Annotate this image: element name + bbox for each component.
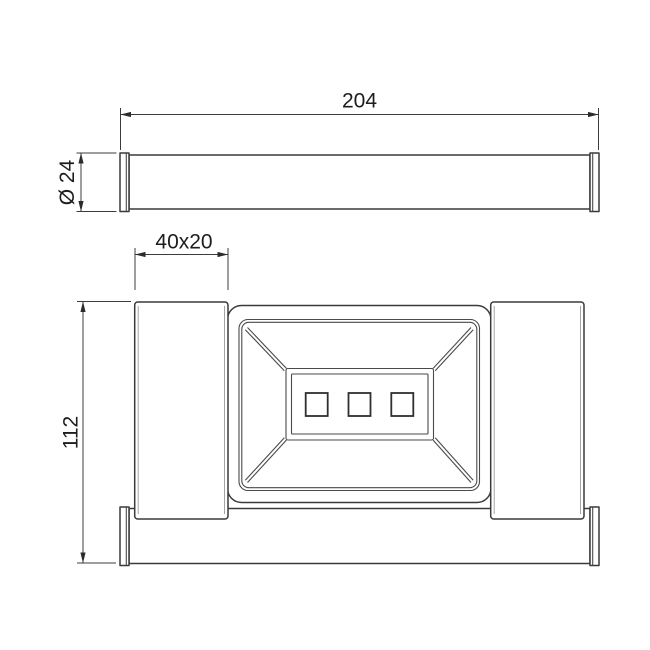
dimension-label-bar-length: 204: [342, 90, 377, 113]
technical-drawing: 204 Ø 24: [0, 0, 650, 650]
soap-basket: [228, 306, 492, 503]
post-section-dimension: 40x20: [135, 231, 228, 291]
dimension-label-overall-height: 112: [60, 416, 83, 449]
bar-end-cap-right: [590, 153, 599, 212]
diameter-dimension: Ø 24: [56, 153, 117, 212]
bar-end-cap-right: [590, 507, 599, 566]
arrowhead-down: [78, 201, 83, 212]
post-right: [491, 302, 584, 519]
arrowhead-right: [588, 112, 599, 117]
arrowhead-up: [78, 153, 83, 164]
arrowhead-right: [218, 252, 229, 257]
bar-end-cap-left: [120, 507, 129, 566]
length-dimension: 204: [121, 90, 599, 151]
arrowhead-up: [80, 302, 85, 313]
bar-top-view: [120, 153, 599, 212]
basket-bottom-outer: [286, 369, 434, 441]
bar-end-cap-left: [120, 153, 129, 212]
front-view: 40x20 112: [60, 231, 600, 566]
top-view: 204 Ø 24: [56, 90, 599, 212]
dimension-label-post-section: 40x20: [155, 231, 212, 254]
arrowhead-left: [121, 112, 132, 117]
post-left: [135, 302, 228, 519]
drawing-canvas: 204 Ø 24: [0, 0, 650, 650]
arrowhead-left: [135, 252, 146, 257]
arrowhead-down: [80, 553, 85, 564]
bar-body: [129, 155, 590, 209]
dimension-label-bar-diameter: Ø 24: [56, 159, 79, 205]
